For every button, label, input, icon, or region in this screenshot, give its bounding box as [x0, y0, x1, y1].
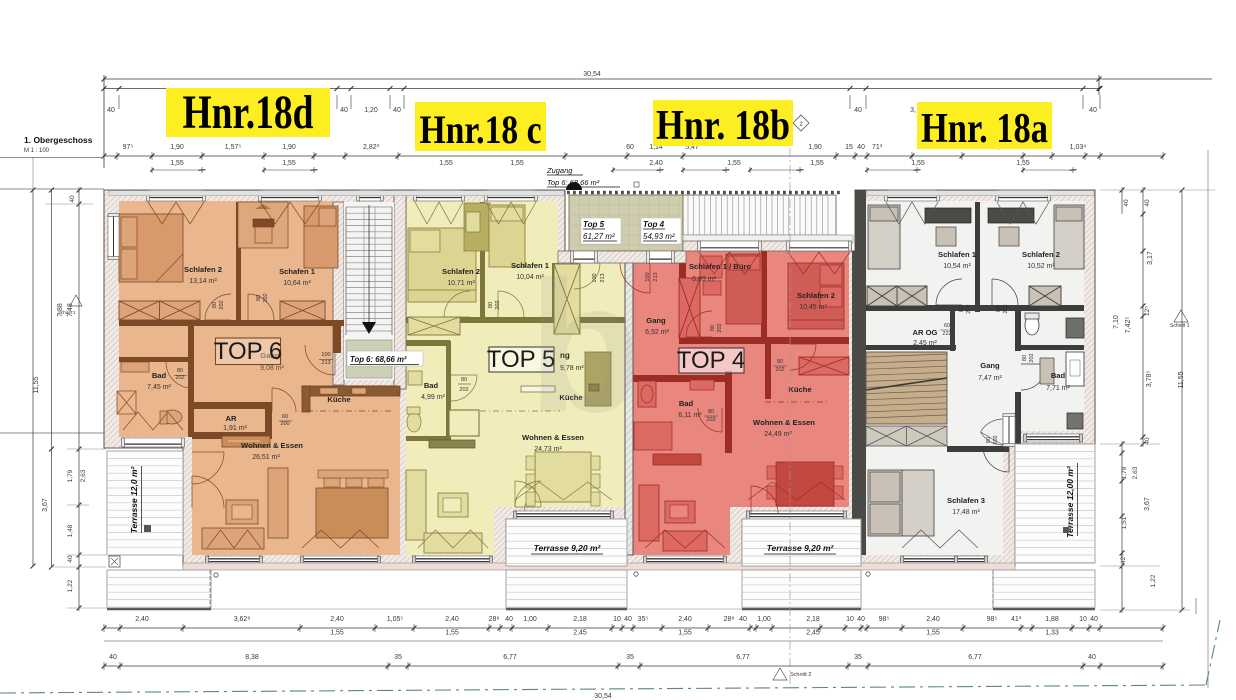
svg-text:Terrasse 12,0 m²: Terrasse 12,0 m²	[129, 465, 139, 533]
svg-text:6,92 m²: 6,92 m²	[645, 329, 669, 336]
svg-text:1,55: 1,55	[330, 630, 344, 637]
svg-text:10: 10	[1079, 616, 1087, 623]
svg-text:213: 213	[321, 360, 330, 366]
svg-text:7,47 m²: 7,47 m²	[978, 375, 1002, 382]
svg-text:1,33: 1,33	[1045, 630, 1059, 637]
svg-text:1,57⁵: 1,57⁵	[225, 144, 242, 151]
svg-text:6,89 m²: 6,89 m²	[692, 276, 716, 283]
svg-text:2,45: 2,45	[806, 630, 820, 637]
svg-text:7,42⁵: 7,42⁵	[1125, 317, 1132, 334]
svg-text:80: 80	[177, 368, 183, 374]
svg-text:1,90: 1,90	[808, 144, 822, 151]
svg-text:TOP 6: TOP 6	[214, 338, 282, 365]
svg-text:6,11 m²: 6,11 m²	[678, 412, 702, 419]
svg-text:60: 60	[282, 414, 288, 420]
svg-text:202: 202	[219, 300, 225, 309]
svg-text:35: 35	[626, 654, 634, 661]
svg-text:60: 60	[944, 323, 950, 329]
svg-text:10,45 m²: 10,45 m²	[799, 304, 827, 311]
svg-text:Küche: Küche	[788, 385, 811, 394]
svg-text:40: 40	[624, 616, 632, 623]
svg-text:98⁵: 98⁵	[987, 616, 998, 623]
svg-text:2,40: 2,40	[678, 616, 692, 623]
svg-text:1,55: 1,55	[926, 630, 940, 637]
svg-text:80: 80	[461, 377, 467, 383]
svg-text:Gang: Gang	[980, 361, 1000, 370]
svg-text:40: 40	[1144, 437, 1151, 445]
svg-text:2,40: 2,40	[926, 616, 940, 623]
svg-text:30,54: 30,54	[583, 71, 601, 78]
svg-text:10,54 m²: 10,54 m²	[943, 263, 971, 270]
svg-text:3,62⁸: 3,62⁸	[234, 616, 251, 623]
svg-text:1,55: 1,55	[727, 160, 741, 167]
svg-text:30,54: 30,54	[594, 693, 612, 700]
svg-text:40: 40	[67, 555, 74, 563]
svg-text:35: 35	[854, 654, 862, 661]
svg-text:202: 202	[706, 417, 715, 423]
svg-text:80: 80	[996, 306, 1002, 312]
svg-text:Küche: Küche	[327, 395, 350, 404]
svg-text:100: 100	[321, 352, 330, 358]
svg-text:2,18: 2,18	[573, 616, 587, 623]
svg-text:2,82³: 2,82³	[363, 144, 380, 151]
svg-text:6,77: 6,77	[503, 654, 517, 661]
svg-text:1,22: 1,22	[1150, 574, 1157, 587]
svg-text:Hnr. 18a: Hnr. 18a	[921, 106, 1048, 152]
svg-text:2,45: 2,45	[573, 630, 587, 637]
svg-text:40: 40	[109, 654, 117, 661]
svg-text:202: 202	[459, 387, 468, 393]
svg-text:61,27 m²: 61,27 m²	[583, 232, 615, 241]
svg-text:M 1 : 100: M 1 : 100	[24, 148, 50, 154]
svg-text:Hnr. 18b: Hnr. 18b	[656, 103, 790, 149]
svg-text:100: 100	[645, 272, 651, 281]
svg-text:40: 40	[69, 195, 76, 203]
svg-text:40: 40	[1088, 654, 1096, 661]
svg-text:202: 202	[717, 323, 723, 332]
svg-text:28⁸: 28⁸	[724, 616, 735, 623]
svg-text:80: 80	[959, 306, 965, 312]
svg-text:2,18: 2,18	[806, 616, 820, 623]
svg-text:60: 60	[626, 144, 634, 151]
svg-text:Schnitt 1: Schnitt 1	[1170, 323, 1190, 329]
svg-text:1,03⁴: 1,03⁴	[1070, 144, 1087, 151]
svg-text:1,90: 1,90	[282, 144, 296, 151]
svg-text:1,55: 1,55	[445, 630, 459, 637]
svg-text:Schlafen 3: Schlafen 3	[947, 496, 985, 505]
svg-text:80: 80	[256, 295, 262, 301]
svg-text:40: 40	[1144, 199, 1151, 207]
svg-text:40: 40	[854, 107, 862, 114]
svg-text:Schlafen 2: Schlafen 2	[1022, 250, 1060, 259]
svg-text:Bad: Bad	[679, 399, 694, 408]
svg-text:2,45 m²: 2,45 m²	[913, 340, 937, 347]
svg-text:28⁸: 28⁸	[489, 616, 500, 623]
svg-text:40: 40	[1089, 107, 1097, 114]
svg-text:Schafen 1: Schafen 1	[279, 267, 316, 276]
svg-text:3,: 3,	[910, 107, 916, 114]
svg-text:26,51 m²: 26,51 m²	[252, 454, 280, 461]
svg-text:1,55: 1,55	[911, 160, 925, 167]
svg-text:7,71 m²: 7,71 m²	[1046, 385, 1070, 392]
svg-text:2,40: 2,40	[445, 616, 459, 623]
svg-text:202: 202	[1029, 353, 1035, 362]
svg-text:AR: AR	[226, 414, 237, 423]
svg-text:35: 35	[394, 654, 402, 661]
svg-text:1,55: 1,55	[439, 160, 453, 167]
svg-text:40: 40	[1123, 199, 1130, 207]
svg-text:1,48: 1,48	[67, 524, 74, 537]
svg-text:3,78⁵: 3,78⁵	[1146, 371, 1153, 388]
svg-text:202: 202	[175, 375, 184, 381]
svg-text:213: 213	[653, 272, 659, 281]
svg-text:202: 202	[775, 367, 784, 373]
svg-text:2,40: 2,40	[649, 160, 663, 167]
svg-text:Wohnen & Essen: Wohnen & Essen	[753, 418, 815, 427]
svg-text:15: 15	[845, 144, 853, 151]
svg-text:11,55: 11,55	[33, 376, 40, 393]
svg-text:40: 40	[393, 107, 401, 114]
svg-text:9,08 m²: 9,08 m²	[260, 365, 284, 372]
svg-text:80: 80	[1022, 355, 1028, 361]
svg-text:202: 202	[495, 300, 501, 309]
svg-text:Bad: Bad	[152, 371, 167, 380]
svg-text:Bad: Bad	[1051, 371, 1066, 380]
svg-text:10: 10	[613, 616, 621, 623]
svg-text:4,99 m²: 4,99 m²	[421, 394, 445, 401]
svg-text:Top 5: Top 5	[583, 220, 605, 229]
svg-text:7,10: 7,10	[1113, 315, 1120, 329]
svg-text:40: 40	[857, 144, 865, 151]
svg-text:54,93 m²: 54,93 m²	[643, 232, 675, 241]
svg-text:80: 80	[708, 409, 714, 415]
svg-text:40: 40	[340, 107, 348, 114]
svg-text:80: 80	[710, 325, 716, 331]
svg-text:202: 202	[1003, 304, 1009, 313]
svg-text:Schnitt 1: Schnitt 1	[58, 310, 76, 315]
svg-text:b: b	[528, 244, 642, 451]
svg-text:97⁵: 97⁵	[123, 144, 134, 151]
svg-text:17,48 m²: 17,48 m²	[952, 509, 980, 516]
svg-text:TOP 4: TOP 4	[677, 347, 745, 374]
svg-text:Zugang: Zugang	[546, 166, 573, 175]
svg-text:1,55: 1,55	[678, 630, 692, 637]
svg-text:1,91 m²: 1,91 m²	[223, 425, 247, 432]
svg-text:Hnr.18 c: Hnr.18 c	[420, 107, 542, 152]
svg-text:Terrasse 12,00 m²: Terrasse 12,00 m²	[1065, 465, 1075, 538]
svg-text:2,40: 2,40	[330, 616, 344, 623]
svg-text:42⁵: 42⁵	[1120, 554, 1127, 564]
svg-text:80: 80	[212, 302, 218, 308]
svg-text:Schnitt 2: Schnitt 2	[790, 672, 811, 678]
svg-text:10,52 m²: 10,52 m²	[1027, 263, 1055, 270]
svg-text:1,55: 1,55	[170, 160, 184, 167]
svg-text:40: 40	[739, 616, 747, 623]
svg-text:1,55: 1,55	[510, 160, 524, 167]
svg-text:1,55: 1,55	[810, 160, 824, 167]
svg-text:2,63: 2,63	[80, 469, 87, 482]
svg-text:6,77: 6,77	[736, 654, 750, 661]
svg-text:Schlafen 2: Schlafen 2	[184, 265, 222, 274]
svg-text:Schlafen 2: Schlafen 2	[797, 291, 835, 300]
svg-text:35⁵: 35⁵	[638, 616, 649, 623]
svg-text:1,88: 1,88	[1045, 616, 1059, 623]
svg-text:80: 80	[488, 302, 494, 308]
svg-text:1,00: 1,00	[523, 616, 537, 623]
svg-text:1,79: 1,79	[67, 469, 74, 482]
svg-text:3,67: 3,67	[42, 498, 49, 512]
svg-text:41³: 41³	[1011, 616, 1022, 623]
svg-text:1,05⁵: 1,05⁵	[387, 616, 404, 623]
svg-text:98⁵: 98⁵	[879, 616, 890, 623]
svg-text:Schlafen 1: Schlafen 1	[938, 250, 977, 259]
svg-text:Top 4: Top 4	[643, 220, 665, 229]
svg-text:Wohnen & Essen: Wohnen & Essen	[241, 441, 303, 450]
svg-text:8,38: 8,38	[245, 654, 259, 661]
svg-text:40: 40	[1090, 616, 1098, 623]
svg-text:1,00: 1,00	[757, 616, 771, 623]
svg-text:1,90: 1,90	[170, 144, 184, 151]
svg-text:40: 40	[505, 616, 513, 623]
svg-text:2,63: 2,63	[1132, 466, 1139, 479]
svg-text:Hnr.18d: Hnr.18d	[183, 86, 314, 139]
svg-text:Bad: Bad	[424, 381, 439, 390]
svg-text:71³: 71³	[872, 144, 883, 151]
svg-text:202: 202	[263, 293, 269, 302]
svg-text:AR OG: AR OG	[913, 328, 938, 337]
svg-text:40: 40	[107, 107, 115, 114]
svg-text:Terrasse 9,20 m²: Terrasse 9,20 m²	[534, 543, 602, 553]
svg-text:1,55: 1,55	[1016, 160, 1030, 167]
svg-text:2,40: 2,40	[135, 616, 149, 623]
svg-text:10: 10	[846, 616, 854, 623]
svg-text:222: 222	[942, 331, 951, 337]
svg-text:Terrasse 9,20 m²: Terrasse 9,20 m²	[767, 543, 835, 553]
svg-text:6,77: 6,77	[968, 654, 982, 661]
svg-text:3,67: 3,67	[1144, 497, 1151, 511]
svg-text:3,17: 3,17	[1147, 251, 1154, 265]
svg-text:202: 202	[966, 304, 972, 313]
svg-text:1. Obergeschoss: 1. Obergeschoss	[24, 135, 93, 145]
svg-text:1,55: 1,55	[282, 160, 296, 167]
svg-text:40: 40	[857, 616, 865, 623]
svg-text:11,55: 11,55	[1178, 371, 1185, 388]
svg-text:200: 200	[280, 421, 289, 427]
svg-text:10,71 m²: 10,71 m²	[447, 280, 475, 287]
svg-text:Top 6: 68,66 m²: Top 6: 68,66 m²	[350, 355, 407, 364]
svg-text:Schlafen 2: Schlafen 2	[442, 267, 480, 276]
svg-text:13,14 m²: 13,14 m²	[189, 278, 217, 285]
svg-text:24,49 m²: 24,49 m²	[764, 431, 792, 438]
svg-text:1,20: 1,20	[364, 107, 378, 114]
svg-text:80: 80	[777, 359, 783, 365]
svg-text:10,64 m²: 10,64 m²	[283, 280, 311, 287]
svg-text:1,22: 1,22	[67, 579, 74, 592]
svg-text:7,45 m²: 7,45 m²	[147, 384, 171, 391]
svg-text:Gang: Gang	[646, 316, 666, 325]
